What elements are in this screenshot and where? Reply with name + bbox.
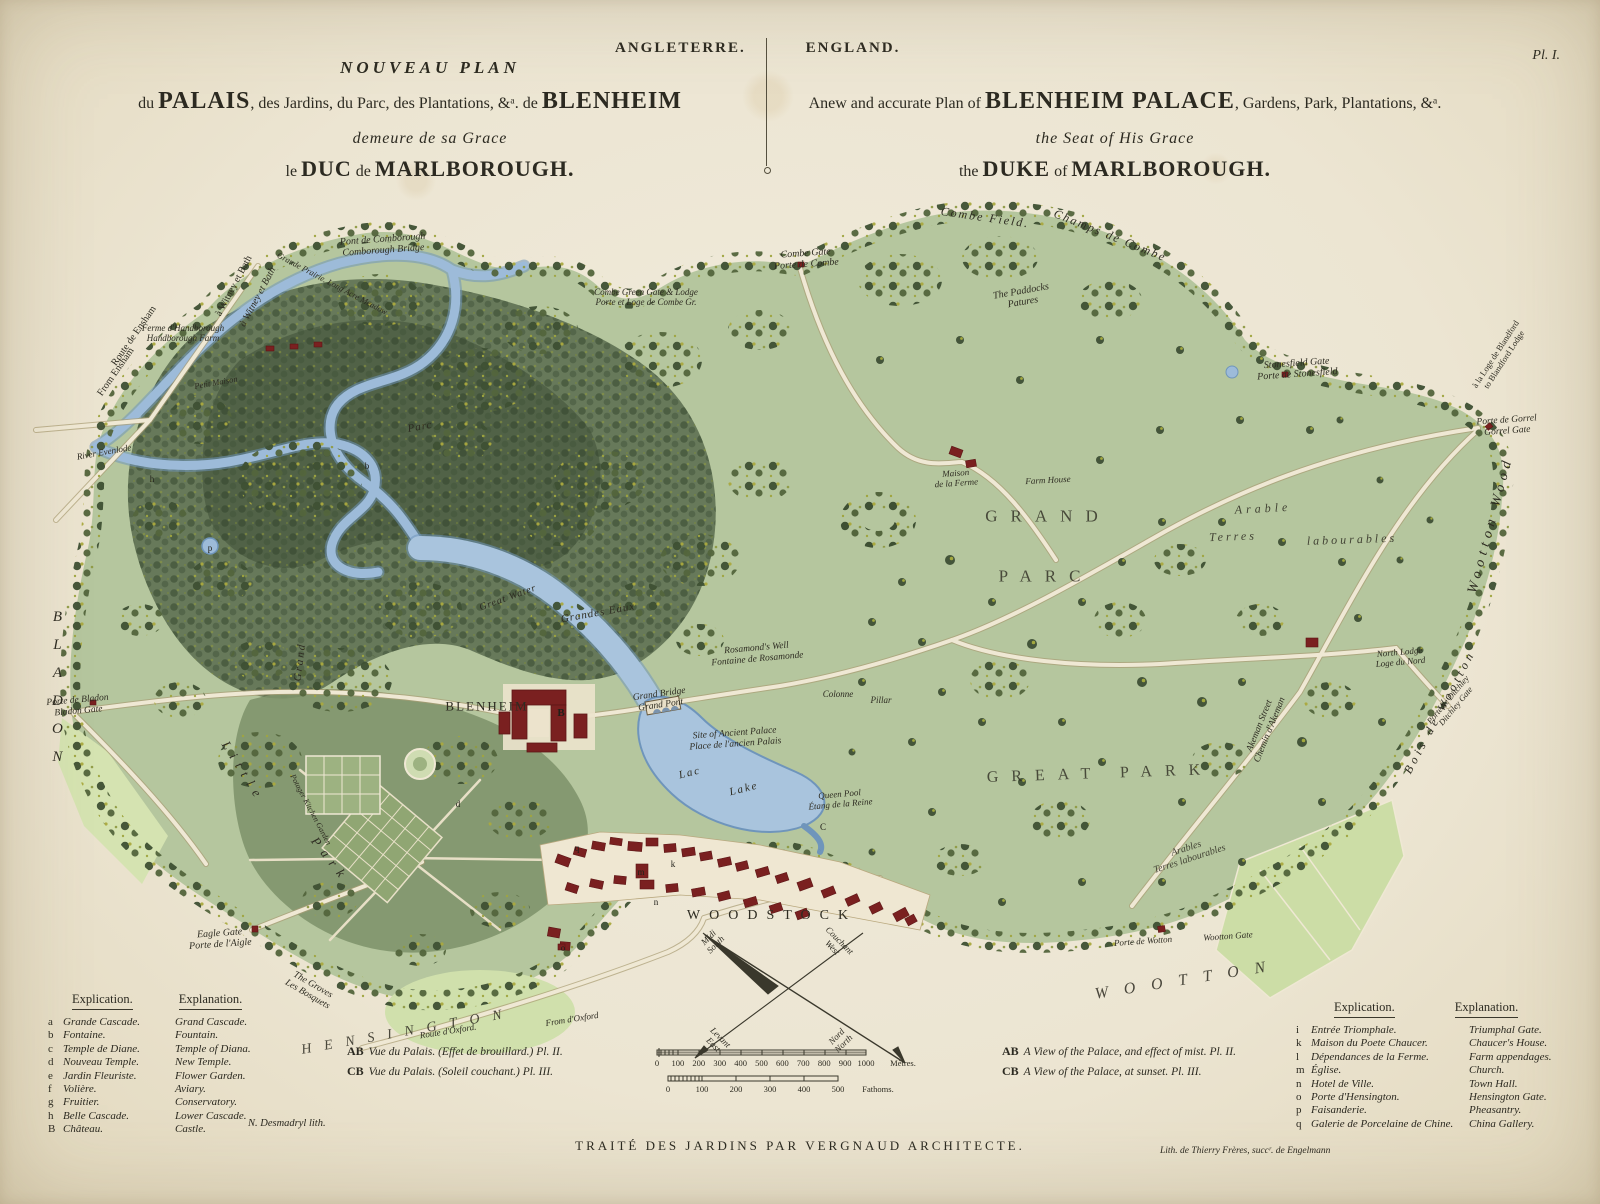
label-colonne: Colonne bbox=[823, 689, 854, 699]
scale-tick: 600 bbox=[776, 1058, 789, 1068]
legend-left-header-fr: Explication. bbox=[72, 992, 133, 1010]
scale-tick: 900 bbox=[839, 1058, 852, 1068]
marker-b: b bbox=[365, 461, 370, 471]
legend-row-f: fVolière.Aviary. bbox=[48, 1083, 348, 1096]
scale-tick: 500 bbox=[832, 1084, 845, 1094]
title-en-line2-post: , Gardens, Park, Plantations, &ᵃ. bbox=[1235, 95, 1442, 112]
legend-left-header-en: Explanation. bbox=[179, 992, 243, 1010]
title-fr-line4: le DUC de MARLBOROUGH. bbox=[60, 156, 800, 182]
marker-m: m bbox=[637, 867, 644, 877]
title-fr-line2-mid: , des Jardins, du Parc, des Plantations,… bbox=[250, 95, 541, 112]
title-fr-palais: PALAIS bbox=[158, 88, 250, 114]
label-maison-de-la-ferme: Maisonde la Ferme bbox=[934, 466, 979, 489]
label-handborough-farm: Ferme d'HandboroughHandborough Farm bbox=[142, 323, 224, 343]
legend-row-i: iEntrée Triomphale.Triumphal Gate. bbox=[1296, 1024, 1586, 1037]
note-en-ab-text: A View of the Palace, and effect of mist… bbox=[1024, 1046, 1236, 1058]
title-en-line4: the DUKE of MARLBOROUGH. bbox=[785, 156, 1445, 182]
marker-n: n bbox=[654, 897, 659, 907]
title-en-blenheim-palace: BLENHEIM PALACE bbox=[985, 88, 1235, 114]
label-blenheim-palace: BLENHEIM bbox=[445, 700, 528, 715]
title-en-line4-mid: of bbox=[1050, 163, 1071, 180]
marker-o: o bbox=[561, 943, 566, 953]
legend-row-e: eJardin Fleuriste.Flower Garden. bbox=[48, 1070, 348, 1083]
title-en-line3: the Seat of His Grace bbox=[785, 130, 1445, 148]
marker-k: k bbox=[671, 859, 676, 869]
scale-tick: 300 bbox=[764, 1084, 777, 1094]
title-fr-line2: du PALAIS, des Jardins, du Parc, des Pla… bbox=[40, 88, 780, 115]
title-en-duke: DUKE bbox=[983, 156, 1051, 181]
legend-row-n: nHotel de Ville.Town Hall. bbox=[1296, 1078, 1586, 1091]
label-north-lodge: North LodgeLoge du Nord bbox=[1374, 645, 1425, 669]
marker-q: q bbox=[575, 843, 580, 853]
label-grand-parc-parc: PARC bbox=[999, 566, 1094, 585]
note-fr-cb-key: CB bbox=[347, 1064, 364, 1078]
scale-bar-fathoms bbox=[668, 1076, 838, 1081]
title-en-marlborough: MARLBOROUGH. bbox=[1071, 156, 1271, 181]
legend-row-b: bFontaine.Fountain. bbox=[48, 1029, 348, 1042]
scale-tick: 200 bbox=[730, 1084, 743, 1094]
title-en-line4-pre: the bbox=[959, 163, 983, 180]
note-en-cb: CBA View of the Palace, at sunset. Pl. I… bbox=[1002, 1064, 1201, 1079]
map-sheet: ANGLETERRE. ENGLAND. Pl. I. NOUVEAU PLAN… bbox=[0, 0, 1600, 1204]
note-fr-ab: ABVue du Palais. (Effet de brouillard.) … bbox=[347, 1044, 563, 1059]
scale-tick: 0 bbox=[666, 1084, 670, 1094]
label-terres-north: Terres bbox=[1209, 529, 1257, 544]
marker-C: C bbox=[820, 822, 826, 832]
title-fr-line4-pre: le bbox=[286, 163, 302, 180]
legend-row-p: pFaisanderie.Pheasantry. bbox=[1296, 1104, 1586, 1117]
note-en-cb-key: CB bbox=[1002, 1064, 1019, 1078]
legend-row-o: oPorte d'Hensington.Hensington Gate. bbox=[1296, 1091, 1586, 1104]
scale-tick: Mètres. bbox=[890, 1058, 916, 1068]
scale-tick: 500 bbox=[755, 1058, 768, 1068]
treatise-title: TRAITÉ DES JARDINS PAR VERGNAUD ARCHITEC… bbox=[0, 1138, 1600, 1154]
title-fr-line1: NOUVEAU PLAN bbox=[60, 58, 800, 78]
scale-tick: 100 bbox=[672, 1058, 685, 1068]
scale-tick: 800 bbox=[818, 1058, 831, 1068]
title-fr-blenheim: BLENHEIM bbox=[542, 88, 682, 114]
scale-tick: 100 bbox=[696, 1084, 709, 1094]
title-en-line2: Anew and accurate Plan of BLENHEIM PALAC… bbox=[785, 88, 1465, 115]
legend-row-c: cTemple de Diane.Temple of Diana. bbox=[48, 1043, 348, 1056]
marker-p: p bbox=[208, 543, 213, 553]
label-pillar: Pillar bbox=[870, 695, 891, 705]
scale-tick: 0 bbox=[655, 1058, 659, 1068]
note-fr-ab-key: AB bbox=[347, 1044, 364, 1058]
title-fr-marlborough: MARLBOROUGH. bbox=[375, 156, 575, 181]
note-en-ab-key: AB bbox=[1002, 1044, 1019, 1058]
scale-tick: 400 bbox=[798, 1084, 811, 1094]
scale-tick: 300 bbox=[713, 1058, 726, 1068]
label-bladon-region: BLADON bbox=[49, 609, 66, 777]
legend-left: Explication. Explanation. aGrande Cascad… bbox=[48, 992, 348, 1137]
label-combe-gate: Combe GatePorte de Combe bbox=[773, 246, 839, 273]
note-fr-cb: CBVue du Palais. (Soleil couchant.) Pl. … bbox=[347, 1064, 553, 1079]
title-fr-duc: DUC bbox=[301, 156, 352, 181]
legend-row-a: aGrande Cascade.Grand Cascade. bbox=[48, 1016, 348, 1029]
legend-row-m: mÉglise.Church. bbox=[1296, 1064, 1586, 1077]
marker-d: d bbox=[456, 799, 461, 809]
series-title-en: ENGLAND. bbox=[793, 40, 913, 57]
lithographer-credit: N. Desmadryl lith. bbox=[248, 1118, 326, 1129]
scale-tick: 700 bbox=[797, 1058, 810, 1068]
title-fr-line4-mid: de bbox=[352, 163, 375, 180]
marker-B: B bbox=[557, 707, 564, 719]
title-en-line2-pre: Anew and accurate Plan of bbox=[809, 95, 985, 112]
legend-right-header-en: Explanation. bbox=[1455, 1000, 1519, 1018]
printer-credit: Lith. de Thierry Frères, succʳ. de Engel… bbox=[1160, 1146, 1330, 1156]
legend-right-header-fr: Explication. bbox=[1334, 1000, 1395, 1018]
label-woodstock-town: WOODSTOCK bbox=[687, 908, 857, 924]
scale-tick: Fathoms. bbox=[862, 1084, 893, 1094]
legend-row-g: gFruitier.Conservatory. bbox=[48, 1096, 348, 1109]
title-fr-line3: demeure de sa Grace bbox=[60, 130, 800, 148]
title-fr-line2-pre: du bbox=[138, 95, 158, 112]
label-grand-parc-grand: GRAND bbox=[985, 506, 1110, 525]
note-en-ab: ABA View of the Palace, and effect of mi… bbox=[1002, 1044, 1236, 1059]
legend-row-d: dNouveau Temple.New Temple. bbox=[48, 1056, 348, 1069]
marker-h: h bbox=[150, 474, 155, 484]
legend-row-q: qGalerie de Porcelaine de Chine.China Ga… bbox=[1296, 1118, 1586, 1131]
note-en-cb-text: A View of the Palace, at sunset. Pl. III… bbox=[1024, 1066, 1202, 1078]
label-combe-green-gate: Combe Green Gate & LodgePorte et Loge de… bbox=[594, 287, 698, 307]
label-gorrel-gate: Porte de GorrelGorrel Gate bbox=[1476, 413, 1538, 438]
legend-row-k: kMaison du Poete Chaucer.Chaucer's House… bbox=[1296, 1037, 1586, 1050]
palace-building bbox=[499, 684, 595, 752]
label-eagle-gate: Eagle GatePorte de l'Aigle bbox=[188, 926, 252, 953]
note-fr-ab-text: Vue du Palais. (Effet de brouillard.) Pl… bbox=[369, 1046, 563, 1058]
scale-tick: 400 bbox=[734, 1058, 747, 1068]
series-title-fr: ANGLETERRE. bbox=[615, 40, 745, 57]
legend-right: Explication. Explanation. iEntrée Triomp… bbox=[1296, 1000, 1586, 1131]
scale-tick: 1000 bbox=[858, 1058, 875, 1068]
note-fr-cb-text: Vue du Palais. (Soleil couchant.) Pl. II… bbox=[369, 1066, 553, 1078]
plate-number: Pl. I. bbox=[1532, 48, 1560, 64]
legend-row-l: lDépendances de la Ferme.Farm appendages… bbox=[1296, 1051, 1586, 1064]
scale-tick: 200 bbox=[692, 1058, 705, 1068]
